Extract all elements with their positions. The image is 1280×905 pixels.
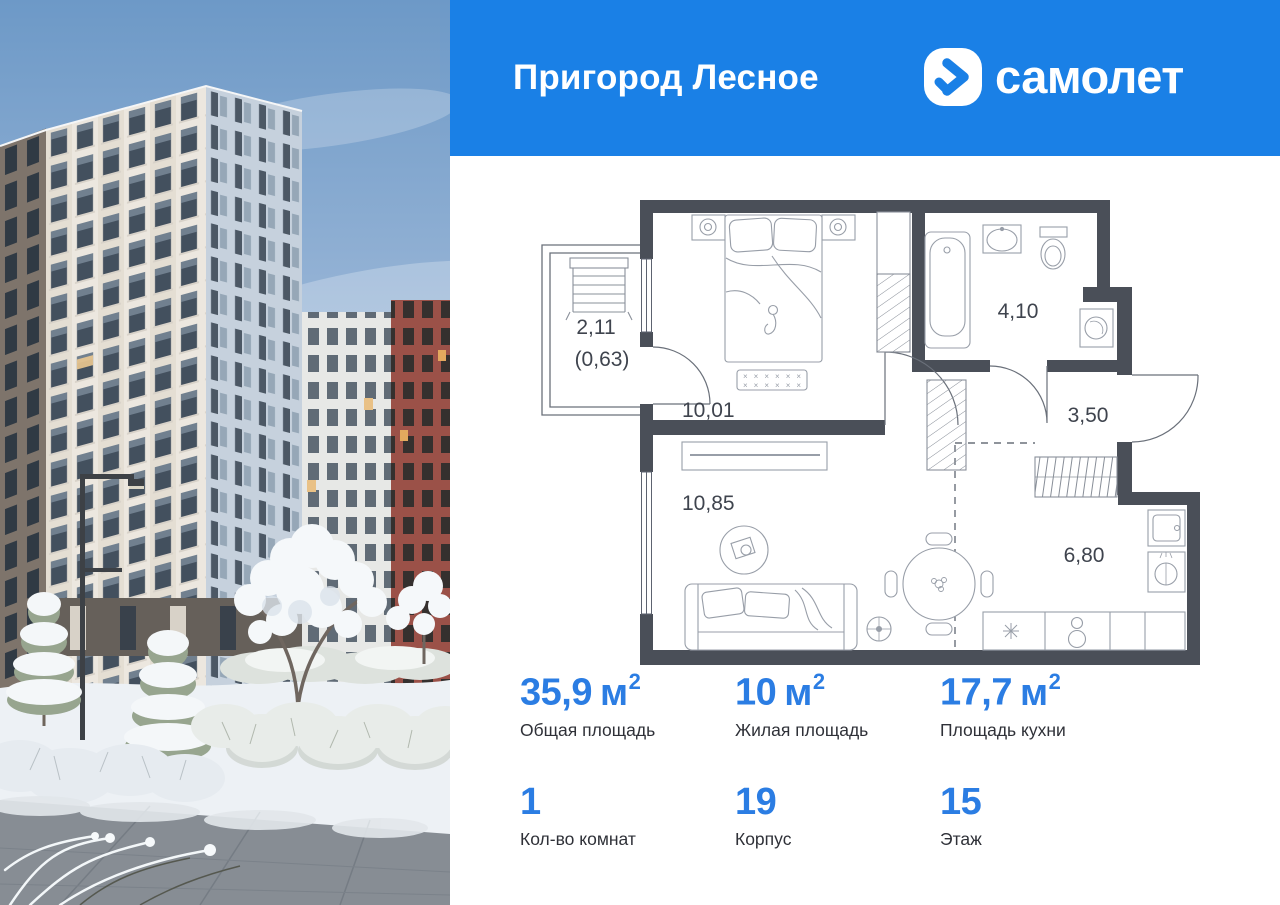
stat-building-label: Корпус [735, 829, 940, 850]
bathroom-sink [983, 225, 1021, 253]
floor-plan: ×××××× ×××××× [540, 192, 1210, 678]
stat-living-area-label: Жилая площадь [735, 720, 940, 741]
floor-lamp [867, 617, 891, 641]
hall-wardrobe [927, 380, 966, 470]
bed [692, 215, 855, 362]
hanger-rack [1035, 457, 1117, 497]
coffee-table [720, 526, 768, 574]
balcony-area-label: 2,11 [576, 316, 615, 339]
sink-symbol [1003, 623, 1019, 639]
bedroom-area-label: 10,01 [682, 399, 735, 422]
washing-machine [1080, 309, 1113, 347]
stat-kitchen-area-label: Площадь кухни [940, 720, 1145, 741]
sofa [685, 584, 857, 650]
stat-kitchen-area: 17,7м2 Площадь кухни [940, 664, 1145, 741]
stat-rooms: 1 Кол-во комнат [520, 782, 725, 850]
listing-card: Пригород Лесное самолет [0, 0, 1280, 905]
samolet-logo-icon [924, 48, 982, 106]
bedroom-wardrobe [877, 212, 910, 352]
balcony-reduced-area-label: (0,63) [575, 348, 630, 371]
bathtub [925, 232, 970, 348]
kitchen-sink-unit [1148, 510, 1185, 546]
photo-illustration [0, 0, 450, 905]
living-room-area-label: 10,85 [682, 492, 735, 515]
stat-rooms-value: 1 [520, 782, 725, 822]
tv-unit [682, 442, 827, 470]
hallway-area-label: 3,50 [1068, 404, 1109, 427]
stat-building-value: 19 [735, 782, 940, 822]
bathroom-door [990, 366, 1047, 423]
stat-floor-value: 15 [940, 782, 1145, 822]
stat-living-area-value: 10м2 [735, 664, 940, 713]
stat-total-area-label: Общая площадь [520, 720, 725, 741]
balcony-door [653, 347, 710, 404]
bathroom-area-label: 4,10 [998, 300, 1039, 323]
entrance-door [1132, 375, 1198, 442]
brand-name: самолет [995, 48, 1184, 106]
project-photo [0, 0, 450, 905]
info-panel: Пригород Лесное самолет [450, 0, 1280, 905]
stat-total-area: 35,9м2 Общая площадь [520, 664, 725, 741]
stat-floor: 15 Этаж [940, 782, 1145, 850]
kitchen-counter [983, 612, 1185, 650]
project-title: Пригород Лесное [513, 0, 819, 156]
stat-living-area: 10м2 Жилая площадь [735, 664, 940, 741]
stat-kitchen-area-value: 17,7м2 [940, 664, 1145, 713]
svg-text:××××××: ×××××× [743, 381, 807, 390]
header-bar: Пригород Лесное самолет [450, 0, 1280, 156]
window-bedroom [641, 259, 652, 332]
bed-bench: ×××××× ×××××× [737, 370, 807, 390]
window-living-room [641, 472, 652, 614]
dining-table [885, 533, 993, 635]
stat-building: 19 Корпус [735, 782, 940, 850]
stat-total-area-value: 35,9м2 [520, 664, 725, 713]
stat-floor-label: Этаж [940, 829, 1145, 850]
kitchen-area-label: 6,80 [1064, 544, 1105, 567]
kitchen-hood [1148, 552, 1185, 592]
drying-rack [566, 258, 632, 320]
stat-rooms-label: Кол-во комнат [520, 829, 725, 850]
brand-logo: самолет [924, 48, 1184, 106]
svg-text:××××××: ×××××× [743, 372, 807, 381]
toilet [1040, 227, 1067, 269]
